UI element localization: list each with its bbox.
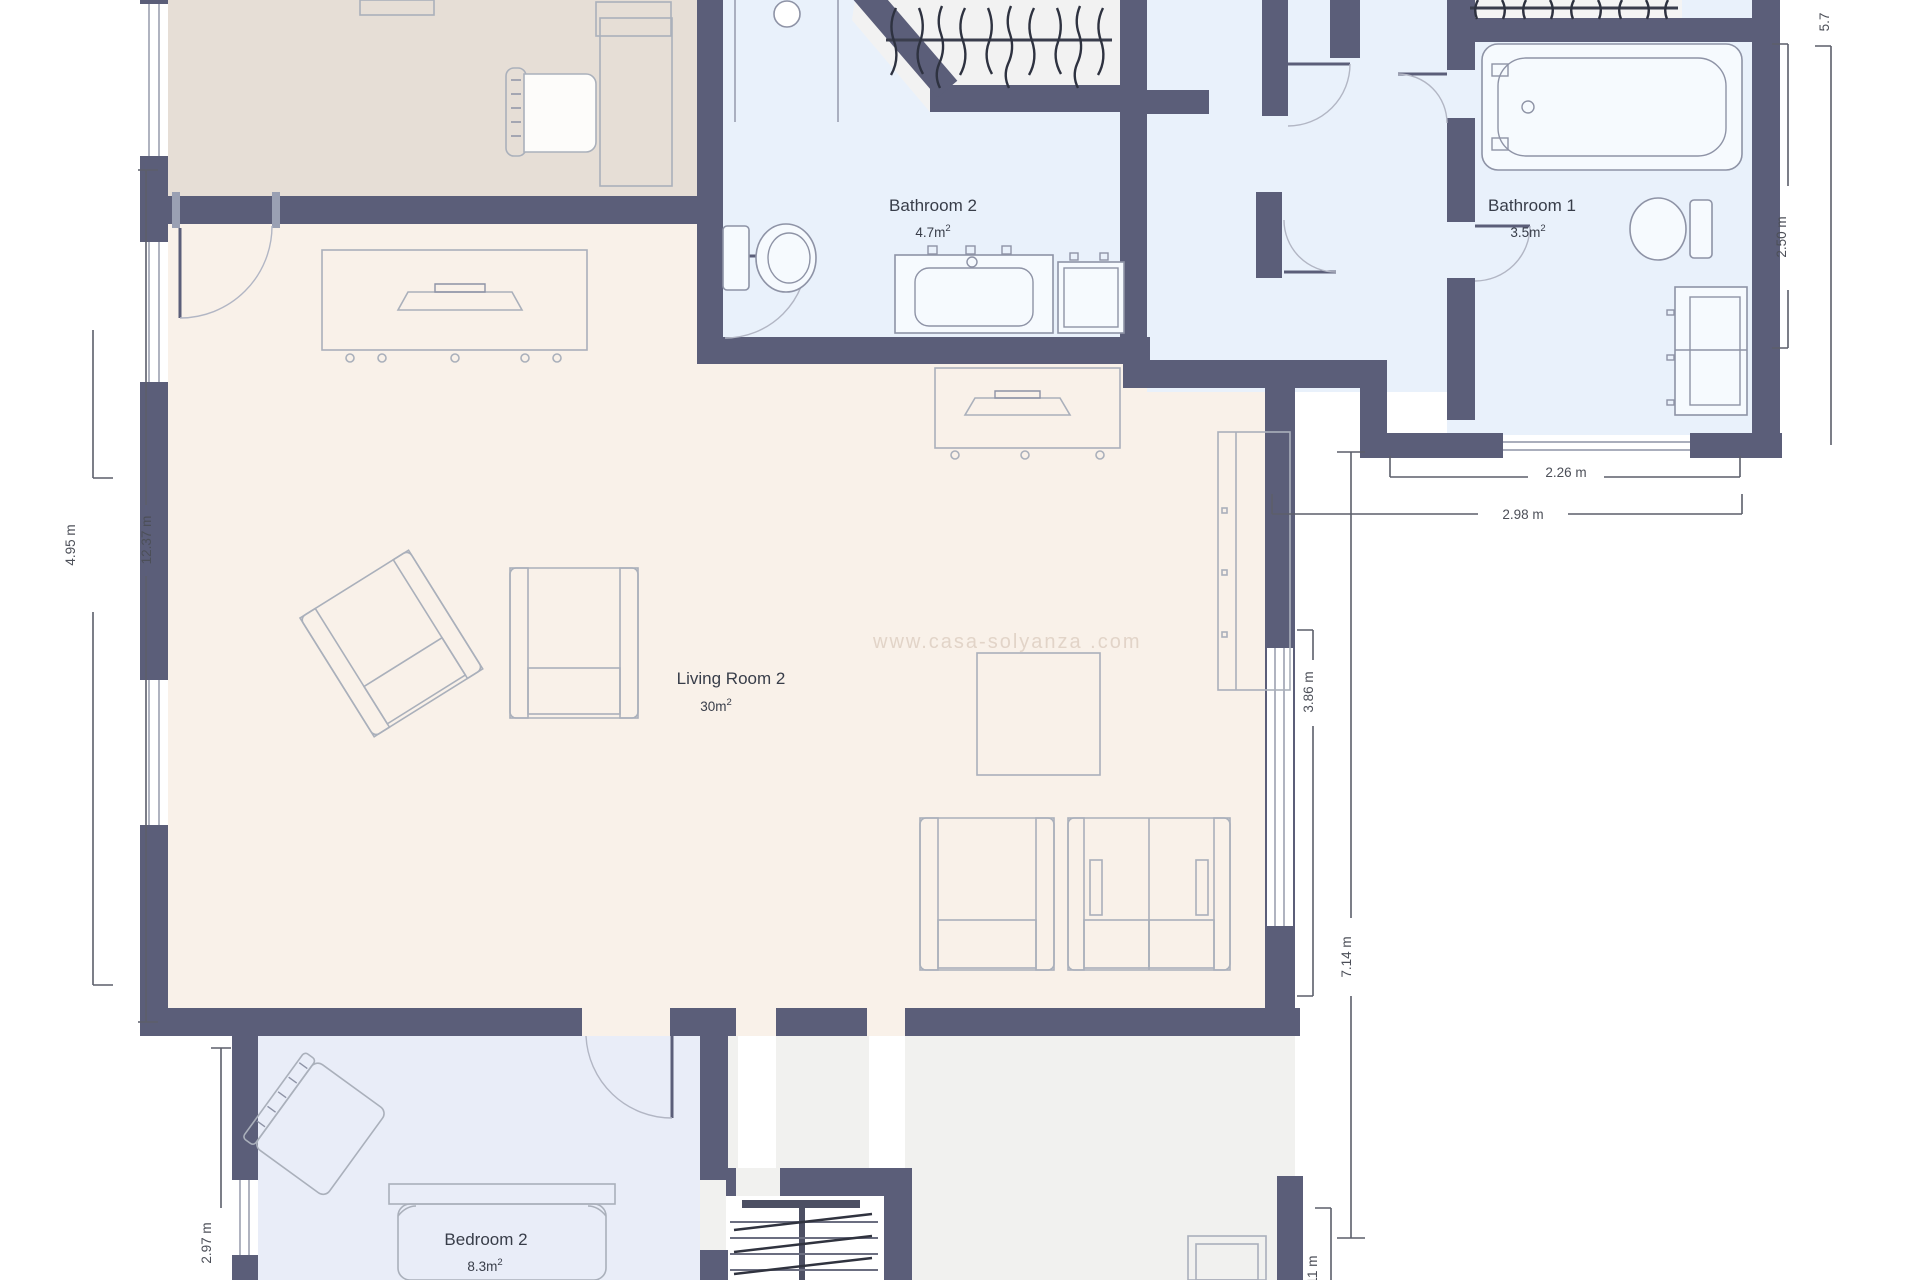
- window: [140, 242, 168, 382]
- svg-text:2.50 m: 2.50 m: [1774, 216, 1789, 257]
- window: [232, 1180, 258, 1255]
- sink-vanity-icon: [895, 246, 1053, 333]
- window: [140, 4, 168, 156]
- cabinet-icon: [1058, 253, 1124, 333]
- room-label-bathroom-2: Bathroom 2: [889, 196, 977, 215]
- window: [1503, 435, 1690, 458]
- room-hallway: [1147, 0, 1447, 392]
- sink-vanity-icon: [1667, 287, 1747, 415]
- watermark: www.casa-solyanza .com: [872, 631, 1142, 653]
- window: [140, 680, 168, 825]
- svg-text:2.98 m: 2.98 m: [1502, 507, 1543, 522]
- light-icon: [774, 1, 800, 27]
- svg-text:7.14 m: 7.14 m: [1339, 936, 1354, 977]
- dimension-bottom-right-partial: 11 m: [1305, 1208, 1331, 1280]
- svg-text:5.7: 5.7: [1817, 13, 1832, 32]
- dimension-left-outer: 4.95 m: [63, 330, 113, 985]
- dimension-top-right-partial: 5.7: [1815, 13, 1832, 445]
- svg-text:12.37 m: 12.37 m: [139, 516, 154, 565]
- room-label-bathroom-1: Bathroom 1: [1488, 196, 1576, 215]
- floor-plan-image: www.casa-solyanza .com: [0, 0, 1920, 1280]
- dimension-bedroom-left: 2.97 m: [199, 1048, 231, 1264]
- bathtub-icon: [1482, 44, 1742, 170]
- room-office: [140, 0, 720, 224]
- threshold-1: [738, 1036, 776, 1168]
- dimension-hallway-bottom: 2.98 m: [1272, 494, 1742, 522]
- svg-text:11 m: 11 m: [1305, 1255, 1320, 1280]
- svg-text:2.26 m: 2.26 m: [1545, 465, 1586, 480]
- toilet-icon: [1630, 198, 1712, 260]
- dimension-bathroom1-bottom: 2.26 m: [1390, 456, 1740, 480]
- dimension-living-right-height: 7.14 m: [1337, 452, 1365, 1238]
- dimension-living-window-right: 3.86 m: [1297, 630, 1316, 996]
- svg-text:2.97 m: 2.97 m: [199, 1222, 214, 1263]
- room-label-bedroom-2: Bedroom 2: [444, 1230, 527, 1249]
- svg-text:3.86 m: 3.86 m: [1301, 671, 1316, 712]
- threshold-2: [869, 1036, 905, 1168]
- room-label-living-room-2: Living Room 2: [677, 669, 786, 688]
- toilet-icon: [723, 224, 816, 292]
- svg-text:4.95 m: 4.95 m: [63, 524, 78, 565]
